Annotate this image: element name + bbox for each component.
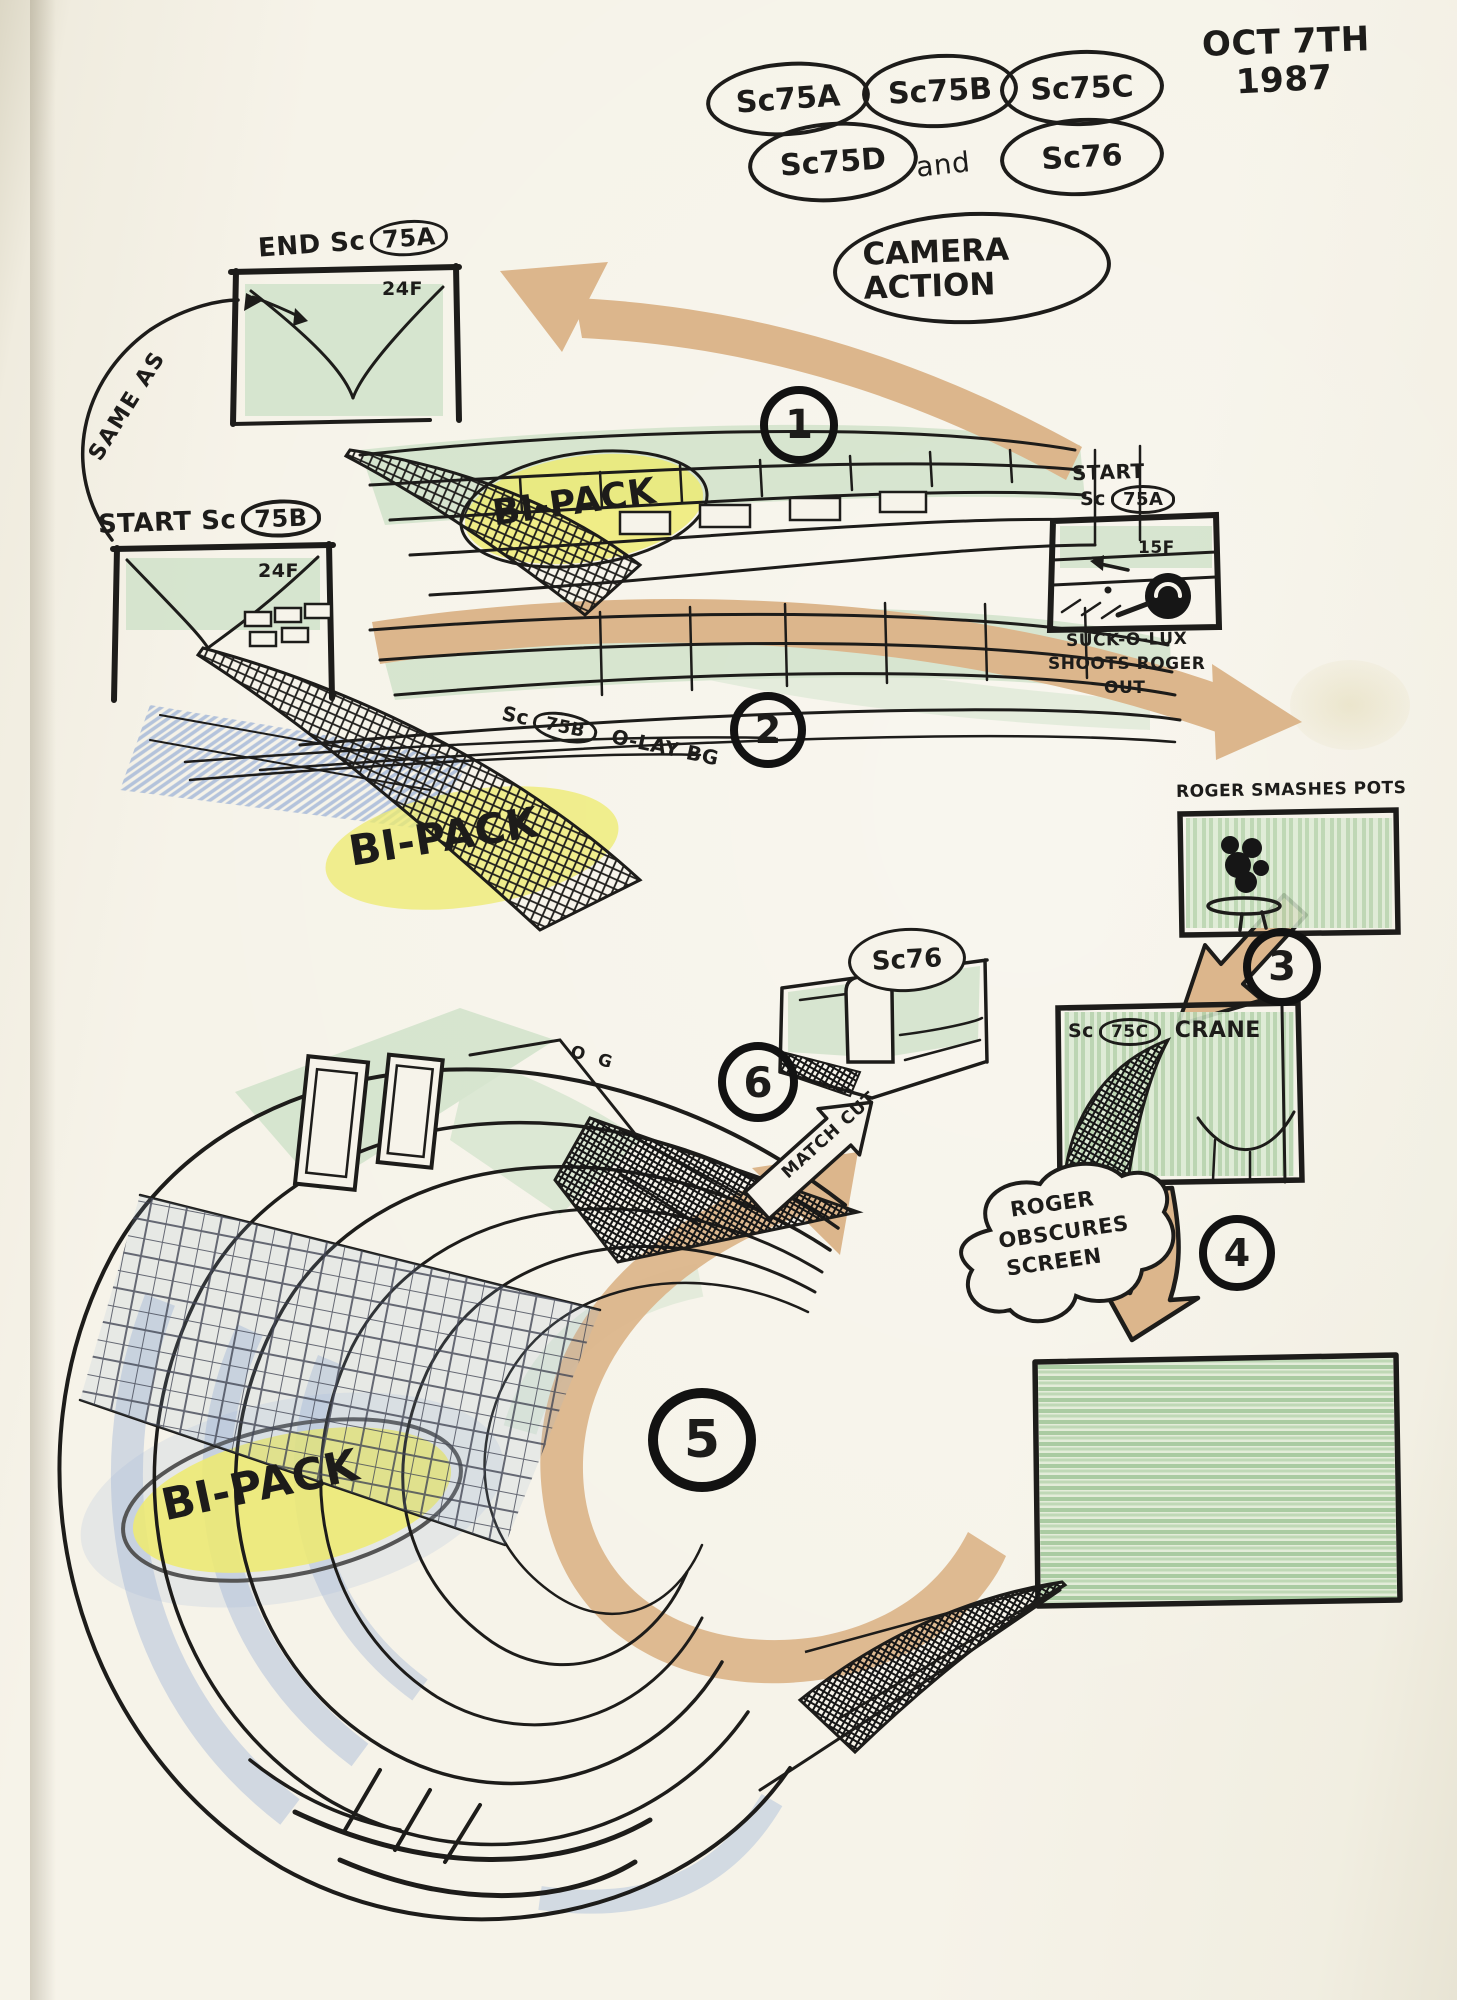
suckolux-line3: OUT [1104, 678, 1145, 698]
scene-conjunction: and [914, 145, 971, 183]
frame-count-start-75a: 15F [1138, 538, 1175, 558]
overlay-prefix: Sc [500, 701, 532, 730]
step-4: 4 [1224, 1231, 1250, 1275]
storyboard-page: OCT 7TH 1987 Sc75A Sc75B Sc75C Sc75D and… [0, 0, 1457, 2000]
start-75a-circled: 75A [1111, 485, 1175, 514]
frame-count-start-75b: 24F [258, 560, 299, 582]
crane-circled: 75C [1099, 1018, 1161, 1046]
start-75a-line1: START [1072, 459, 1145, 486]
scene-75b-label: Sc75B [887, 71, 993, 111]
step-2-badge: 2 [730, 692, 806, 768]
scene-75a-label: Sc75A [735, 78, 842, 120]
roger-smashes-pots-label: ROGER SMASHES POTS [1176, 778, 1407, 802]
suckolux-line1: SUCK-O-LUX [1066, 629, 1188, 651]
frame-count-end-75a: 24F [382, 278, 423, 300]
start-75a-prefix: Sc [1080, 488, 1106, 510]
suckolux-line2: SHOOTS ROGER [1048, 654, 1205, 674]
date-line1: OCT 7TH [1201, 19, 1370, 65]
end-75a-circled: 75A [369, 217, 449, 258]
step-2: 2 [755, 708, 781, 752]
step-5: 5 [684, 1410, 720, 1470]
scene-76-label: Sc76 [1041, 137, 1124, 176]
camera-action-line2: ACTION [863, 267, 996, 306]
step-4-badge: 4 [1199, 1215, 1275, 1291]
step-1-badge: 1 [760, 386, 838, 464]
scene-75d-label: Sc75D [779, 141, 887, 183]
end-75a-prefix: END Sc [257, 226, 366, 263]
step-1: 1 [785, 402, 813, 448]
start-75b-label: START Sc75B [97, 498, 321, 544]
start-75b-prefix: START Sc [98, 505, 237, 540]
date-line2: 1987 [1235, 57, 1334, 102]
step-3-badge: 3 [1243, 928, 1321, 1006]
start-75a-line2: Sc75A [1080, 485, 1175, 514]
sketch-canvas [0, 0, 1457, 2000]
step-6-badge: 6 [718, 1042, 798, 1122]
sc76-label: Sc76 [871, 943, 943, 977]
step-6: 6 [743, 1058, 772, 1107]
pots-panel-ink [1180, 810, 1398, 935]
green-screen-panel [800, 1355, 1400, 1752]
crane-label: Sc75C CRANE [1068, 1018, 1261, 1046]
crane-rest: CRANE [1175, 1018, 1261, 1043]
step-5-badge: 5 [648, 1388, 756, 1492]
crane-prefix: Sc [1068, 1020, 1094, 1042]
step-3: 3 [1268, 944, 1296, 990]
start-75b-circled: 75B [241, 498, 321, 539]
scene-75c-label: Sc75C [1030, 69, 1134, 108]
